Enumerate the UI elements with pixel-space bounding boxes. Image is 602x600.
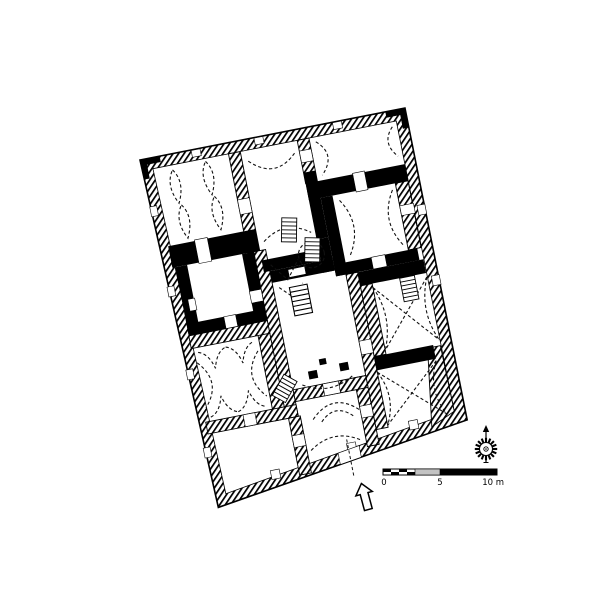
stairs-icon [281,218,296,242]
stairs-icon [305,238,320,262]
floor-plan-figure: 0 5 10 m [0,0,602,600]
scale-label-5: 5 [437,478,442,488]
scale-label-0: 0 [381,478,386,488]
drawing-canvas: 0 5 10 m [0,0,602,600]
scale-label-10m: 10 m [482,478,504,488]
